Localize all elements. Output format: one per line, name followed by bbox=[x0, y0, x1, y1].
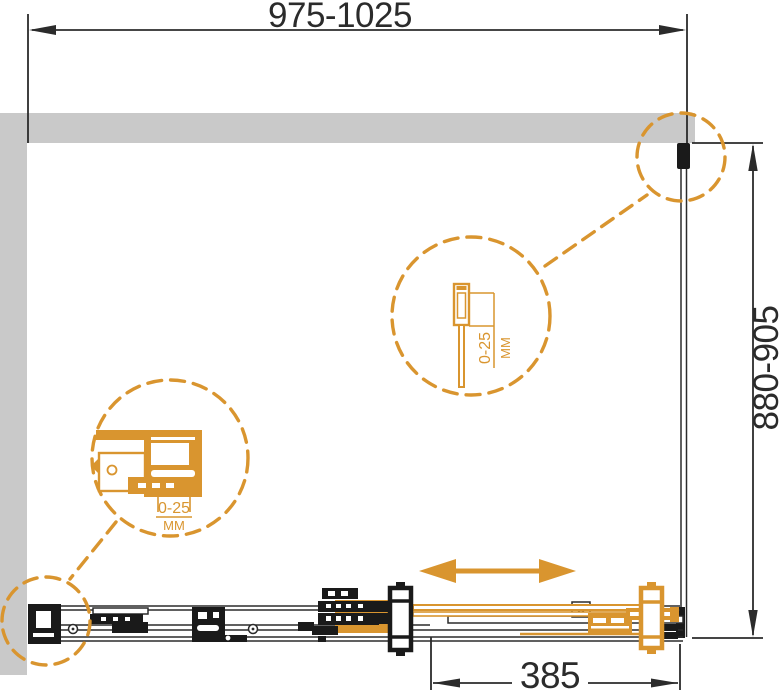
wall-profile-detail: 0-25 MM bbox=[454, 284, 513, 387]
left-wall-profile-slot bbox=[36, 611, 51, 628]
depth-arrow-up-icon bbox=[748, 144, 757, 171]
fixing-mark bbox=[346, 604, 351, 608]
fixing-lower-block bbox=[312, 626, 338, 635]
wall-profile-unit-label: MM bbox=[498, 337, 513, 359]
fixing-side-block bbox=[298, 622, 314, 631]
handle-wall-pad bbox=[670, 607, 679, 622]
detail-dash bbox=[166, 483, 174, 488]
fixing-tab bbox=[318, 636, 326, 642]
carriage-body bbox=[192, 607, 225, 638]
depth-arrow-down-icon bbox=[748, 610, 757, 637]
track-unit-label: MM bbox=[163, 518, 185, 533]
leader-track-callout bbox=[70, 522, 116, 579]
carriage-mark bbox=[101, 617, 106, 621]
callout-circle-wall-profile bbox=[392, 237, 550, 395]
fixing-mark bbox=[358, 616, 363, 621]
fixing-mark bbox=[336, 616, 341, 621]
fixing-mark bbox=[358, 604, 363, 608]
glass-panel-lines bbox=[681, 145, 687, 637]
glass-top-wall-bracket bbox=[677, 143, 690, 169]
door-end-block bbox=[588, 613, 632, 633]
knob-cap-bottom bbox=[396, 650, 405, 656]
door-handle bbox=[626, 582, 679, 654]
knob-body bbox=[390, 588, 411, 650]
handle-grip bbox=[641, 588, 662, 648]
track-adjustment-detail: 0-25 MM bbox=[91, 430, 202, 533]
detail-dash bbox=[152, 483, 160, 488]
track-range-label: 0-25 bbox=[158, 500, 190, 517]
door-end-groove bbox=[591, 626, 629, 629]
dimension-depth: 880-905 bbox=[692, 143, 782, 638]
fixing-slot bbox=[341, 591, 348, 596]
detail-screw-icon bbox=[108, 466, 117, 475]
door-end-slot bbox=[593, 618, 606, 623]
fixing-mark bbox=[336, 604, 341, 608]
width-arrow-right-icon bbox=[659, 25, 686, 35]
fixing-mark bbox=[326, 604, 331, 608]
carriage-slot bbox=[197, 625, 219, 631]
handle-cap-top bbox=[647, 582, 656, 588]
fixing-mark bbox=[326, 616, 331, 621]
left-wall-profile-groove bbox=[33, 633, 54, 637]
screw-dot-icon bbox=[72, 628, 75, 631]
door-travel-label: 385 bbox=[520, 655, 580, 690]
center-fixing-assembly bbox=[298, 588, 390, 642]
wall-top-strip bbox=[0, 113, 695, 143]
carriage-window bbox=[213, 612, 219, 618]
door-rail-upper bbox=[413, 605, 642, 610]
screw-dot-icon bbox=[252, 628, 255, 631]
fixing-top-block bbox=[322, 588, 358, 599]
detail-groove bbox=[151, 437, 195, 440]
fixing-mark bbox=[346, 616, 351, 621]
carriage-guide bbox=[93, 608, 148, 614]
carriage-window bbox=[198, 612, 207, 619]
orange-glide-pad bbox=[379, 624, 388, 633]
handle-cap-bottom bbox=[647, 648, 656, 654]
knob-cap-top bbox=[396, 582, 405, 588]
detail-dash bbox=[138, 483, 146, 488]
door-end-slot bbox=[611, 618, 624, 623]
side-glass-panel bbox=[676, 143, 690, 638]
leader-wall-profile-callout bbox=[545, 195, 647, 266]
profile-top-cap bbox=[457, 286, 467, 290]
depth-dimension-label: 880-905 bbox=[747, 306, 782, 431]
width-dimension-label: 975-1025 bbox=[268, 0, 412, 35]
door-knob-profile bbox=[390, 582, 411, 656]
carriage-mark bbox=[125, 617, 130, 621]
carriage-mark bbox=[113, 617, 118, 621]
detail-slot bbox=[151, 470, 195, 477]
width-arrow-left-icon bbox=[29, 25, 56, 35]
door-travel-arrow-left-icon bbox=[433, 679, 460, 688]
door-travel-arrow-right-icon bbox=[651, 679, 678, 688]
fixing-slot bbox=[328, 591, 335, 596]
screw-icon bbox=[226, 636, 231, 641]
wall-profile-range-label: 0-25 bbox=[477, 332, 494, 364]
slide-arrow-left-icon bbox=[419, 559, 456, 583]
drawing-canvas: 975-1025 880-905 385 bbox=[0, 0, 782, 690]
left-wall-profile bbox=[28, 604, 61, 644]
carriage-lower-block bbox=[112, 622, 148, 633]
detail-window bbox=[151, 443, 189, 465]
carriage-foot bbox=[192, 635, 247, 642]
slide-arrow-right-icon bbox=[539, 559, 576, 583]
shower-enclosure-technical-drawing: 975-1025 880-905 385 bbox=[0, 0, 782, 690]
profile-glass-stem bbox=[459, 325, 464, 387]
slide-direction-arrow bbox=[419, 559, 576, 583]
profile-outer bbox=[454, 284, 469, 325]
